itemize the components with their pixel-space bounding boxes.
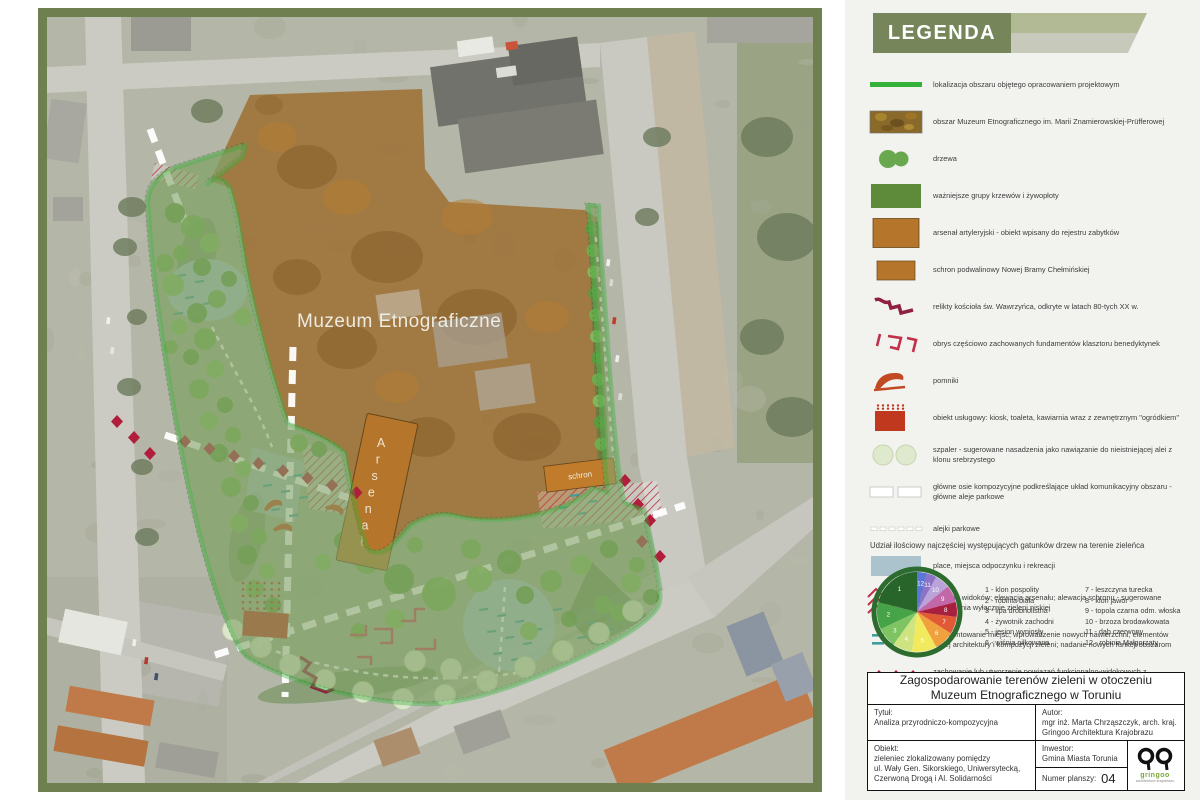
legend-item-label: główne osie kompozycyjne podkreślające u… [927, 482, 1181, 502]
logo-trees-icon [1133, 747, 1177, 771]
svg-text:10: 10 [932, 587, 939, 594]
legend-item: lokalizacja obszaru objętego opracowanie… [865, 70, 1181, 100]
foundations-swatch [865, 329, 927, 359]
legend-item: arsenał artyleryjski - obiekt wpisany do… [865, 218, 1181, 248]
pie-svg: 121110987654321 [867, 562, 967, 662]
svg-text:9: 9 [941, 596, 945, 603]
sheet-title-line1: Zagospodarowanie terenów zieleni w otocz… [900, 673, 1152, 688]
numer-label: Numer planszy: [1042, 774, 1096, 784]
legend-title: LEGENDA [888, 22, 996, 45]
obiekt-label: Obiekt: [874, 744, 1029, 754]
legend-item-label: arsenał artyleryjski - obiekt wpisany do… [927, 228, 1181, 238]
sheet-title-line2: Muzeum Etnograficznego w Toruniu [931, 688, 1122, 703]
svg-text:s: s [371, 469, 377, 483]
schron-swatch [865, 255, 927, 285]
legend-header: LEGENDA [873, 13, 1011, 53]
species-item: 12 - robinia Małgorzaty [1085, 638, 1180, 649]
obiekt-cell: Obiekt: zieleniec zlokalizowany pomiędzy… [868, 741, 1036, 790]
legend-item-label: alejki parkowe [927, 524, 1181, 534]
museum-label: Muzeum Etnograficzne [297, 311, 501, 332]
autor-line2: Gringoo Architektura Krajobrazu [1042, 728, 1178, 738]
logo-name: gringoo [1140, 772, 1170, 779]
svg-text:5: 5 [921, 637, 925, 644]
plan-sheet: Arsenał schron [0, 0, 1200, 800]
monument-swatch [865, 366, 927, 396]
legend-item-label: pomniki [927, 376, 1181, 386]
legend-item-label: obiekt usługowy: kiosk, toaleta, kawiarn… [927, 413, 1181, 423]
title-block-header: Zagospodarowanie terenów zieleni w otocz… [868, 673, 1184, 705]
paths-swatch [865, 514, 927, 544]
legend-item: obiekt usługowy: kiosk, toaleta, kawiarn… [865, 403, 1181, 433]
autor-cell: Autor: mgr inż. Marta Chrząszczyk, arch.… [1036, 705, 1184, 740]
aerial-map: Arsenał schron [47, 17, 813, 783]
numer-value: 04 [1101, 771, 1115, 788]
species-list-col2: 7 - leszczyna turecka8 - klon jawor9 - t… [1085, 585, 1180, 648]
inwestor-value: Gmina Miasta Torunia [1042, 754, 1121, 764]
map-frame: Arsenał schron [38, 8, 822, 792]
svg-text:e: e [368, 486, 375, 500]
tytul-label: Tytuł: [874, 708, 1029, 718]
legend-panel: LEGENDA lokalizacja obszaru objętego opr… [845, 0, 1200, 800]
legend-item-label: schron podwalinowy Nowej Bramy Chełmińsk… [927, 265, 1181, 275]
svg-text:3: 3 [893, 627, 897, 634]
svg-text:8: 8 [944, 607, 948, 614]
legend-item: relikty kościoła św. Wawrzyńca, odkryte … [865, 292, 1181, 322]
species-item: 10 - brzoza brodawkowata [1085, 617, 1180, 628]
svg-text:n: n [365, 502, 372, 516]
tytul-cell: Tytuł: Analiza przyrodniczo-kompozycyjna [868, 705, 1036, 740]
inwestor-cell: Inwestor: Gmina Miasta Torunia [1036, 741, 1127, 768]
legend-item: obszar Muzeum Etnograficznego im. Marii … [865, 107, 1181, 137]
title-block: Zagospodarowanie terenów zieleni w otocz… [867, 672, 1185, 791]
svg-text:4: 4 [905, 636, 909, 643]
obiekt-line1: zieleniec zlokalizowany pomiędzy [874, 754, 1029, 764]
svg-text:2: 2 [887, 612, 891, 619]
axes-swatch [865, 477, 927, 507]
species-item: 3 - lipa drobnolistna [985, 606, 1054, 617]
legend-item-label: drzewa [927, 154, 1181, 164]
autor-label: Autor: [1042, 708, 1178, 718]
relics-swatch [865, 292, 927, 322]
svg-text:r: r [376, 453, 380, 467]
species-item: 5 - jesion wyniosły [985, 627, 1054, 638]
legend-item: obrys częściowo zachowanych fundamentów … [865, 329, 1181, 359]
autor-line1: mgr inż. Marta Chrząszczyk, arch. kraj. [1042, 718, 1178, 728]
obiekt-line3: Czerwoną Drogą i Al. Solidarności [874, 774, 1029, 784]
tytul-value: Analiza przyrodniczo-kompozycyjna [874, 718, 1029, 728]
arsenal-swatch [865, 218, 927, 248]
species-item: 8 - klon jawor [1085, 596, 1180, 607]
species-list-col1: 1 - klon pospolity2 - robinia biała3 - l… [985, 585, 1054, 648]
species-item: 6 - wiśnia piłkowana [985, 638, 1054, 649]
legend-item-label: obszar Muzeum Etnograficznego im. Marii … [927, 117, 1181, 127]
logo-subtitle: architektura krajobrazu [1136, 779, 1175, 784]
gringoo-logo: gringoo architektura krajobrazu [1128, 741, 1182, 790]
species-item: 7 - leszczyna turecka [1085, 585, 1180, 596]
species-item: 11 - dąb czerwony [1085, 627, 1180, 638]
trees-swatch [865, 144, 927, 174]
service-swatch [865, 403, 927, 433]
numer-cell: Numer planszy: 04 [1036, 768, 1127, 790]
legend-item: alejki parkowe [865, 514, 1181, 544]
species-item: 4 - żywotnik zachodni [985, 617, 1054, 628]
photo-swatch [865, 107, 927, 137]
legend-item-label: obrys częściowo zachowanych fundamentów … [927, 339, 1181, 349]
svg-text:1: 1 [898, 586, 902, 593]
legend-item: pomniki [865, 366, 1181, 396]
legend-item: schron podwalinowy Nowej Bramy Chełmińsk… [865, 255, 1181, 285]
species-item: 1 - klon pospolity [985, 585, 1054, 596]
pie-heading: Udział ilościowy najczęściej występujący… [870, 541, 1175, 550]
legend-item-label: ważniejsze grupy krzewów i żywopłoty [927, 191, 1181, 201]
species-item: 9 - topola czarna odm. włoska [1085, 606, 1180, 617]
legend-item: główne osie kompozycyjne podkreślające u… [865, 477, 1181, 507]
legend-item-label: szpaler - sugerowane nasadzenia jako naw… [927, 445, 1181, 465]
legend-item: ważniejsze grupy krzewów i żywopłoty [865, 181, 1181, 211]
legend-header-tail [1011, 13, 1147, 53]
svg-text:6: 6 [935, 630, 939, 637]
species-pie-chart: 121110987654321 [867, 562, 967, 662]
obiekt-line2: ul. Wały Gen. Sikorskiego, Uniwersytecką… [874, 764, 1029, 774]
legend-item: szpaler - sugerowane nasadzenia jako naw… [865, 440, 1181, 470]
svg-text:7: 7 [942, 619, 946, 626]
legend-item: drzewa [865, 144, 1181, 174]
shrubs-swatch [865, 181, 927, 211]
species-item: 2 - robinia biała [985, 596, 1054, 607]
line-swatch [865, 70, 927, 100]
legend-item-label: lokalizacja obszaru objętego opracowanie… [927, 80, 1181, 90]
inwestor-label: Inwestor: [1042, 744, 1121, 754]
svg-text:A: A [377, 436, 386, 450]
legend-item-label: relikty kościoła św. Wawrzyńca, odkryte … [927, 302, 1181, 312]
szpaler-swatch [865, 440, 927, 470]
